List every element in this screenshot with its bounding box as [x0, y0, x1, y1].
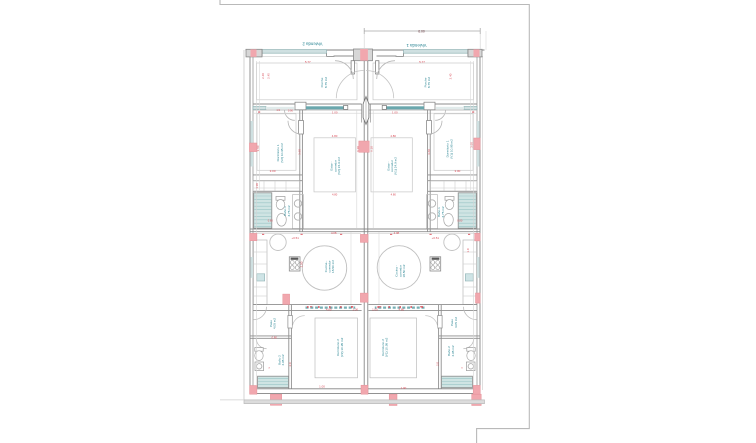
svg-text:4.05 m2: 4.05 m2 — [273, 318, 277, 329]
svg-text:0.90: 0.90 — [288, 109, 294, 113]
svg-text:(V2) 24.9 m2: (V2) 24.9 m2 — [337, 157, 341, 175]
svg-text:4.80: 4.80 — [326, 308, 332, 312]
svg-text:3.60: 3.60 — [256, 145, 260, 151]
svg-text:4.95 m2: 4.95 m2 — [281, 354, 285, 365]
svg-text:6.00: 6.00 — [418, 29, 425, 33]
svg-text:2.0: 2.0 — [436, 362, 440, 366]
svg-text:(V1) 10.95 m2: (V1) 10.95 m2 — [449, 139, 453, 159]
svg-text:3.00: 3.00 — [454, 169, 460, 173]
svg-text:1.9: 1.9 — [276, 108, 280, 112]
svg-text:0.80: 0.80 — [272, 335, 278, 339]
svg-text:18.50 m2: 18.50 m2 — [402, 264, 406, 277]
svg-text:0.80: 0.80 — [268, 218, 274, 222]
svg-text:1.00: 1.00 — [392, 111, 398, 115]
svg-text:2.40: 2.40 — [261, 73, 265, 79]
svg-text:+0.51: +0.51 — [432, 236, 440, 240]
svg-text:2.0: 2.0 — [288, 362, 292, 366]
svg-text:6.10: 6.10 — [369, 146, 373, 152]
svg-text:8.75 m2: 8.75 m2 — [427, 77, 431, 88]
svg-text:4.80: 4.80 — [332, 193, 338, 197]
svg-text:3.60: 3.60 — [469, 142, 473, 148]
svg-text:(V2) 10.95 m2: (V2) 10.95 m2 — [280, 143, 284, 163]
svg-text:+0.51: +0.51 — [292, 236, 300, 240]
svg-text:18.50 m2: 18.50 m2 — [331, 260, 335, 273]
svg-text:3.75 m2: 3.75 m2 — [441, 206, 445, 217]
svg-text:4.05 m2: 4.05 m2 — [454, 317, 458, 328]
svg-text:3.75 m2: 3.75 m2 — [287, 205, 291, 216]
svg-text:4.08: 4.08 — [394, 231, 400, 235]
svg-text:2.45: 2.45 — [266, 73, 270, 79]
svg-text:(V2) 10.95 m2: (V2) 10.95 m2 — [340, 337, 344, 357]
svg-text:5.77: 5.77 — [419, 60, 425, 64]
svg-text:Vivienda 1: Vivienda 1 — [406, 43, 427, 48]
svg-text:1.00: 1.00 — [319, 384, 325, 388]
svg-text:5.77: 5.77 — [305, 60, 311, 64]
svg-text:4.95 m2: 4.95 m2 — [451, 345, 455, 356]
svg-text:1.00: 1.00 — [401, 386, 407, 390]
svg-text:4.80: 4.80 — [390, 134, 396, 138]
svg-text:1.90: 1.90 — [255, 183, 259, 189]
svg-text:3.60: 3.60 — [297, 149, 301, 155]
svg-text:1.0: 1.0 — [466, 248, 470, 252]
svg-text:(V1) 24.9 m2: (V1) 24.9 m2 — [394, 157, 398, 175]
svg-text:4.08: 4.08 — [331, 231, 337, 235]
svg-text:1.00: 1.00 — [332, 111, 338, 115]
svg-text:Vivienda 2: Vivienda 2 — [302, 42, 323, 47]
svg-text:3.00: 3.00 — [270, 169, 276, 173]
svg-text:4.80: 4.80 — [391, 193, 397, 197]
svg-text:(V1) 10.95 m2: (V1) 10.95 m2 — [385, 337, 389, 357]
svg-text:0.80: 0.80 — [457, 218, 463, 222]
svg-text:6.10: 6.10 — [356, 146, 360, 152]
svg-text:2.40: 2.40 — [449, 73, 453, 79]
svg-text:8.75 m2: 8.75 m2 — [324, 77, 328, 88]
svg-text:3.60: 3.60 — [427, 149, 431, 155]
svg-text:1.00: 1.00 — [352, 308, 358, 312]
svg-text:2.90: 2.90 — [299, 261, 303, 267]
svg-text:4.80: 4.80 — [398, 308, 404, 312]
svg-text:1.00: 1.00 — [372, 308, 378, 312]
svg-text:4.80: 4.80 — [332, 134, 338, 138]
